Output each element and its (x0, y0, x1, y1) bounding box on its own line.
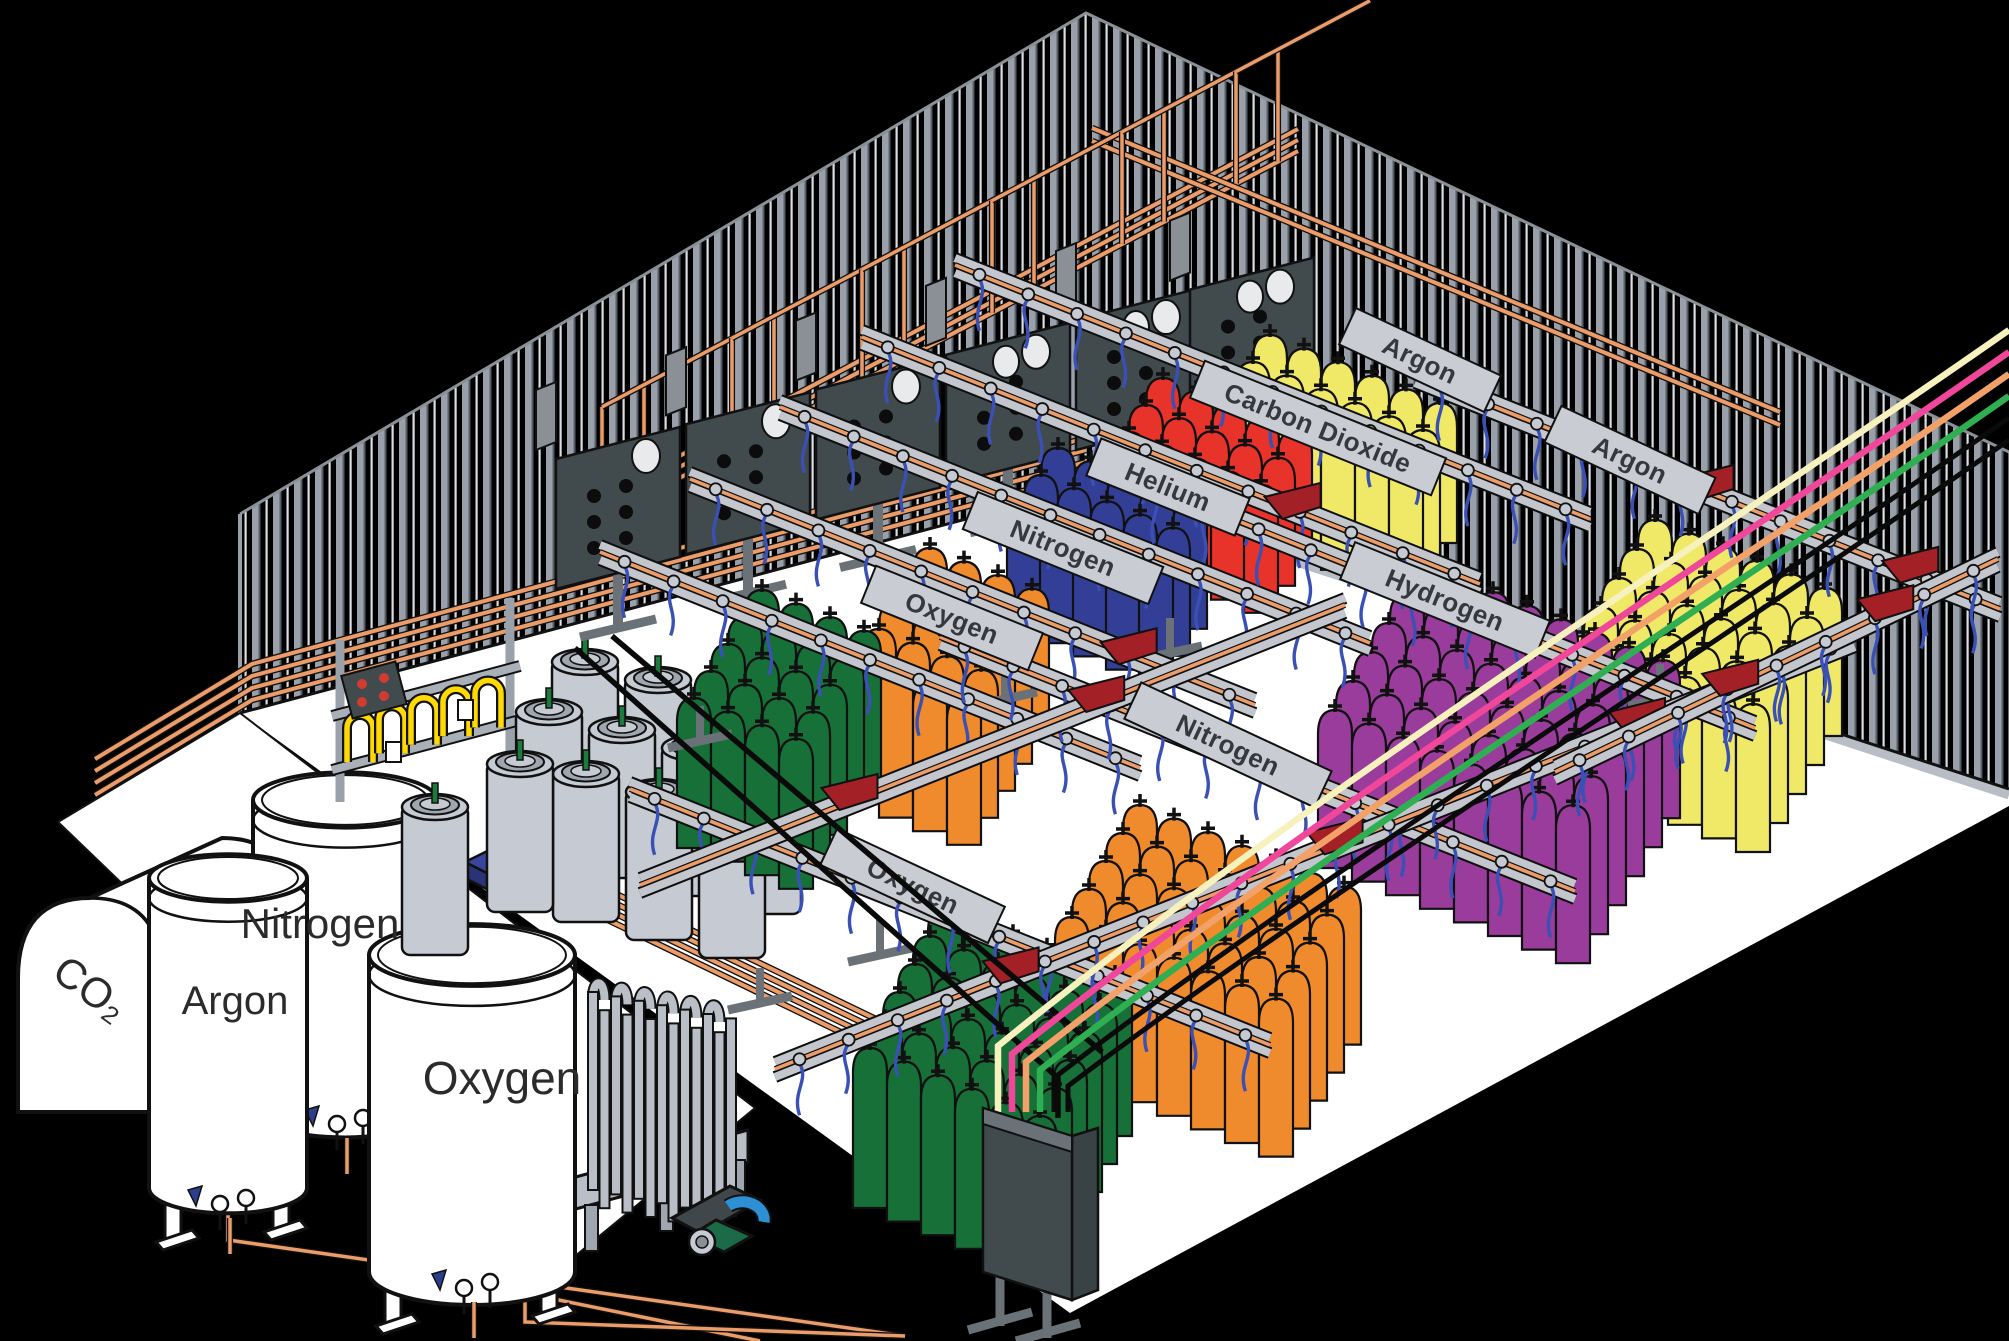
oxygen-tank-label: Oxygen (423, 1052, 582, 1104)
panel-side-tab (666, 347, 686, 415)
fitting-valve (212, 1196, 228, 1212)
control-button (379, 673, 389, 683)
vaporizer-tube (657, 1005, 667, 1203)
hose-fitting (649, 793, 661, 805)
panel-side-tab (536, 382, 556, 450)
dewar-body (402, 805, 468, 955)
vaporizer-tube (680, 1010, 690, 1208)
hose-fitting (973, 269, 985, 281)
oxygen-tank (369, 924, 575, 1338)
control-button (379, 691, 389, 701)
hose-fitting (941, 995, 953, 1007)
panel-port (1221, 346, 1235, 360)
hose-fitting (1771, 660, 1783, 672)
hose-fitting (892, 1014, 904, 1026)
hose-fitting (1036, 403, 1048, 415)
vaporizer-leg (585, 1205, 598, 1251)
panel-side (1072, 1128, 1098, 1300)
gas-cylinder (1225, 985, 1259, 1143)
hose-fitting (1253, 523, 1265, 535)
panel-port (619, 531, 633, 545)
vaporizer-tube (646, 1019, 656, 1217)
vaporizer-tube (669, 1023, 679, 1221)
tank-top (369, 924, 575, 986)
dewar-valve (583, 750, 589, 770)
hose-fitting (1511, 484, 1523, 496)
panel-gauge (632, 439, 660, 473)
dewar-valve (619, 706, 625, 726)
control-button (357, 697, 367, 707)
hose-fitting (1018, 607, 1030, 619)
hose-fitting (815, 634, 827, 646)
panel-side-tab (926, 278, 946, 346)
hose-fitting (1241, 588, 1253, 600)
hose-fitting (1192, 568, 1204, 580)
dewar-valve (432, 783, 438, 803)
hose-fitting (864, 545, 876, 557)
hose-fitting (1223, 689, 1235, 701)
hose-fitting (1239, 1029, 1251, 1041)
hose-fitting (1545, 875, 1557, 887)
vaporizer-tube (634, 1001, 644, 1199)
connector-block (458, 700, 473, 720)
gas-cylinder (853, 1048, 887, 1208)
panel-port (717, 454, 731, 468)
dewar-valve (656, 768, 662, 788)
plant-illustration: CO₂ Nitrogen Argon Oxygen Oxygen Nitroge… (0, 0, 2009, 1341)
panel-port (619, 479, 633, 493)
hose-fitting (1022, 288, 1034, 300)
dewar-valve (517, 740, 523, 760)
panel-port (619, 505, 633, 519)
hose-fitting (1447, 836, 1459, 848)
hose-fitting (1339, 627, 1351, 639)
hose-fitting (1088, 936, 1100, 948)
vaporizer-tube (588, 992, 598, 1190)
hose-fitting (1190, 1009, 1202, 1021)
hose-fitting (1967, 565, 1979, 577)
gas-cylinder (1259, 999, 1293, 1157)
hose-fitting (710, 483, 722, 495)
panel-port (587, 489, 601, 503)
hose-fitting (766, 615, 778, 627)
scene-illustration: CO₂ Nitrogen Argon Oxygen Oxygen Nitroge… (0, 0, 2009, 1341)
panel-port (749, 470, 763, 484)
hose-fitting (812, 524, 824, 536)
hose-fitting (1448, 568, 1460, 580)
fitting-valve (482, 1274, 498, 1290)
fitting-valve (456, 1280, 472, 1296)
vaporizer-tube (692, 1028, 702, 1226)
hose-fitting (993, 931, 1005, 943)
panel-port (1139, 366, 1153, 380)
hose-fitting (1918, 589, 1930, 601)
hose-fitting (1305, 544, 1317, 556)
panel-port (587, 515, 601, 529)
panel-side-tab (796, 313, 816, 381)
hose-fitting (1345, 527, 1357, 539)
panel-port (1107, 350, 1121, 364)
panel-port (1107, 402, 1121, 416)
hose-fitting (761, 504, 773, 516)
panel-gauge (1237, 281, 1263, 313)
hose-fitting (1039, 956, 1051, 968)
gas-cylinder (921, 1075, 955, 1235)
hose-fitting (799, 411, 811, 423)
connector-block (386, 742, 401, 762)
hose-fitting (843, 1034, 855, 1046)
hose-fitting (967, 586, 979, 598)
hose-fitting (1726, 496, 1738, 508)
dewar-valve (546, 688, 552, 708)
dewar-body (553, 772, 619, 922)
hose-fitting (913, 674, 925, 686)
dewar-cylinder (553, 750, 619, 922)
hose-fitting (1120, 327, 1132, 339)
control-button (357, 679, 367, 689)
panel-side-tab (1170, 213, 1190, 281)
hose-fitting (1056, 680, 1068, 692)
hose-fitting (1531, 418, 1543, 430)
hose-fitting (1462, 464, 1474, 476)
panel-gauge (993, 346, 1019, 378)
hose-fitting (1623, 731, 1635, 743)
hose-fitting (848, 431, 860, 443)
fitting-valve (238, 1190, 254, 1206)
vaporizer-tube (611, 996, 621, 1194)
hose-fitting (915, 565, 927, 577)
panel-gauge (1152, 300, 1180, 334)
hose-fitting (1169, 347, 1181, 359)
hose-fitting (1560, 503, 1572, 515)
hose-fitting (985, 382, 997, 394)
hose-fitting (1088, 424, 1100, 436)
argon-tank-label: Argon (182, 979, 289, 1023)
panel-port (1221, 320, 1235, 334)
hose-fitting (668, 575, 680, 587)
tank-top (149, 854, 307, 901)
panel-gauge (1266, 270, 1294, 304)
hose-fitting (897, 450, 909, 462)
panel-port (1009, 427, 1023, 441)
dewar-cylinder (402, 783, 468, 955)
panel-port (1107, 376, 1121, 390)
panel-port (1253, 310, 1267, 324)
gas-cylinder (887, 1062, 921, 1222)
vaporizer-tube (600, 1010, 610, 1208)
panel-port (749, 444, 763, 458)
hose-fitting (946, 470, 958, 482)
hose-fitting (882, 341, 894, 353)
hose-fitting (1071, 308, 1083, 320)
tank-body (369, 955, 575, 1272)
hose-fitting (1574, 754, 1586, 766)
vaporizer-tube (703, 1014, 713, 1212)
vaporizer-tube (623, 1015, 633, 1213)
hose-fitting (717, 595, 729, 607)
nitrogen-tank-label: Nitrogen (241, 900, 400, 947)
hose-fitting (1672, 707, 1684, 719)
dewar-cylinder (487, 740, 553, 912)
panel-port (879, 410, 893, 424)
hose-fitting (864, 654, 876, 666)
hose-fitting (933, 362, 945, 374)
panel-gauge (892, 370, 920, 404)
hose-fitting (1397, 547, 1409, 559)
hose-fitting (1069, 627, 1081, 639)
fitting-valve (329, 1116, 345, 1132)
hose-fitting (619, 556, 631, 568)
hose-fitting (1820, 636, 1832, 648)
pump-inlet-center (696, 1236, 708, 1248)
dewar-body (487, 762, 553, 912)
hose-fitting (1496, 856, 1508, 868)
hose-fitting (698, 813, 710, 825)
hose-fitting (794, 1053, 806, 1065)
